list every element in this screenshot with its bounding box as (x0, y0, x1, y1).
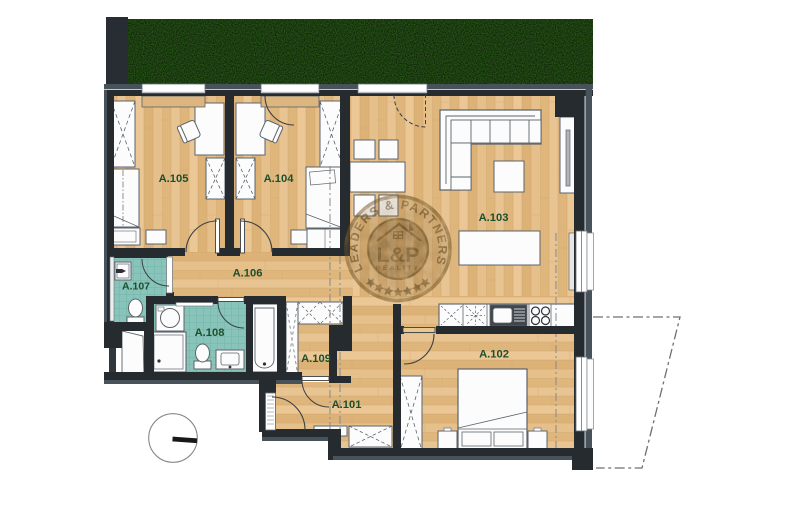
svg-text:A.105: A.105 (159, 173, 189, 185)
svg-text:A.101: A.101 (332, 399, 362, 411)
svg-text:A.104: A.104 (264, 173, 295, 185)
svg-text:L&P: L&P (377, 243, 420, 267)
svg-text:A.108: A.108 (195, 327, 225, 339)
svg-text:A.106: A.106 (233, 268, 263, 280)
svg-text:A.107: A.107 (122, 281, 150, 293)
svg-text:A.109: A.109 (301, 353, 331, 365)
svg-text:REALITY: REALITY (376, 265, 420, 272)
svg-text:A.103: A.103 (479, 212, 509, 224)
svg-text:A.102: A.102 (479, 349, 509, 361)
